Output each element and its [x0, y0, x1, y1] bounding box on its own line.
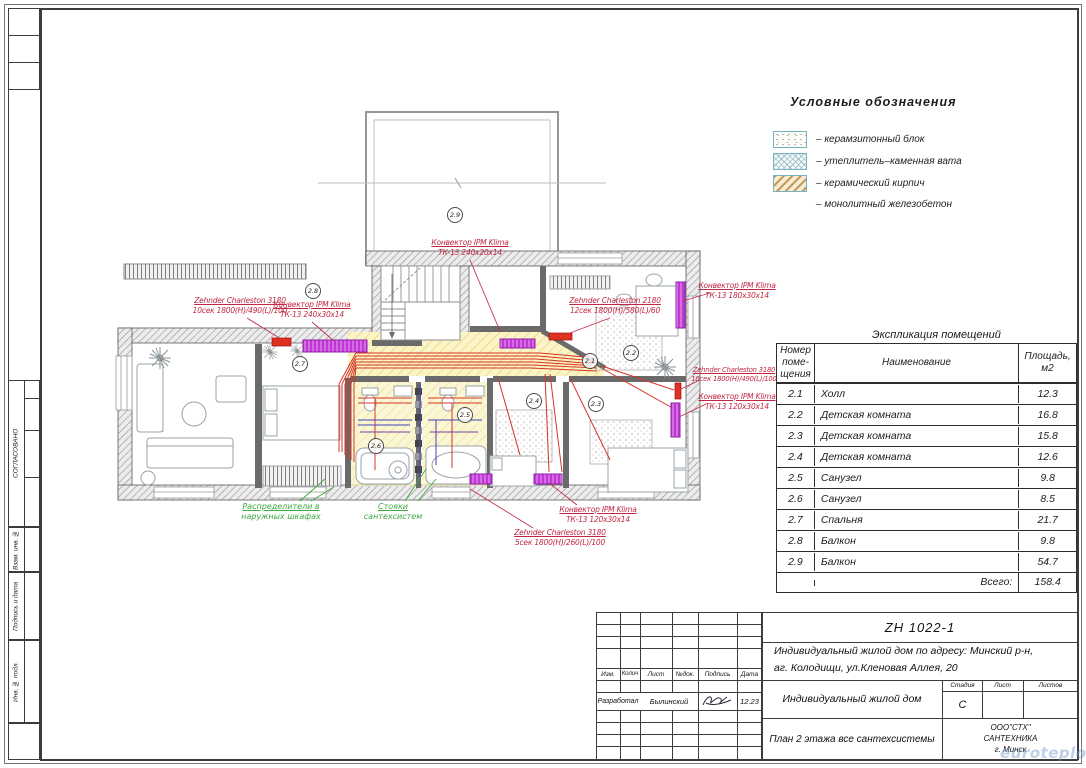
col-header-name: Наименование: [815, 344, 1019, 382]
label-zehnder-bottom: Zehnder Charleston 31805сек 1800(H)/260(…: [508, 528, 612, 548]
balcony-2-8-railing: [124, 264, 306, 279]
total-value: 158.4: [1019, 573, 1076, 591]
rooms-table-title: Экспликация помещений: [872, 329, 1001, 341]
table-row: 2.5Санузел9.8: [777, 467, 1076, 488]
legend-swatch-keramzit: [773, 131, 807, 148]
sheet-title: План 2 этажа все сантехсистемы: [762, 718, 942, 760]
table-row: 2.4Детская комната12.6: [777, 446, 1076, 467]
room-circle-2-2: 2.2: [623, 345, 639, 361]
legend-item-keramzit: – керамзитонный блок: [816, 134, 925, 145]
company-line2: САНТЕХНИКА: [943, 733, 1078, 744]
stairs: [381, 266, 460, 340]
drawing-sheet: СОГЛАСОВАНО Взам. инв. № Подпись и дата …: [0, 0, 1086, 768]
total-label: Всего:: [815, 573, 1020, 591]
table-row: 2.2Детская комната16.8: [777, 404, 1076, 425]
label-convector-right-mid: Конвектор IPM KlimaТК-13 120x30x14: [694, 392, 780, 412]
col-izm: Изм.: [596, 668, 620, 680]
developer-date: 12.23: [737, 692, 762, 710]
object-name: Индивидуальный жилой дом: [762, 680, 942, 718]
stage-label: Стадия: [943, 680, 982, 691]
watermark: euroteplo.by: [1000, 744, 1086, 762]
legend-title: Условные обозначения: [790, 95, 956, 109]
legend-item-insulation: – утеплитель–каменная вата: [816, 156, 962, 167]
label-convector-bottom: Конвектор IPM KlimaТК-13 120x30x14: [550, 505, 646, 525]
table-row: 2.8Балкон9.8: [777, 530, 1076, 551]
company-line1: ООО"СТХ": [943, 722, 1078, 733]
col-podpis: Подпись: [698, 668, 737, 680]
label-zehnder-right: Zehnder Charleston 318010сек 1800(H)/490…: [688, 366, 780, 384]
room-circle-2-6: 2.6: [368, 438, 384, 454]
lists-label: Листов: [1023, 680, 1078, 691]
legend-swatch-insulation: [773, 153, 807, 170]
legend-item-brick: – керамический кирпич: [816, 178, 925, 189]
legend-item-concrete: – монолитный железобетон: [816, 199, 952, 210]
room-circle-2-5: 2.5: [457, 407, 473, 423]
label-zehnder-mid: Zehnder Charleston 218012сек 1800(H)/580…: [556, 296, 674, 316]
legend-swatch-brick: [773, 175, 807, 192]
col-kolich: Колич: [620, 668, 640, 680]
address-line2: аг. Колодищи, ул.Кленовая Аллея, 20: [774, 662, 958, 674]
table-row: 2.9Балкон54.7: [777, 551, 1076, 572]
col-data: Дата: [737, 668, 762, 680]
table-total-row: Всего: 158.4: [777, 572, 1076, 592]
label-risers: Стоякисантехсистем: [348, 502, 438, 523]
room-circle-2-1: 2.1: [582, 353, 598, 369]
col-header-num: Номер поме- щения: [777, 344, 815, 382]
room-circle-2-3: 2.3: [588, 396, 604, 412]
table-row: 2.7Спальня21.7: [777, 509, 1076, 530]
col-header-area: Площадь, м2: [1019, 344, 1076, 382]
developer-role: Разработал: [596, 692, 640, 710]
room-circle-2-4: 2.4: [526, 393, 542, 409]
table-row: 2.6Санузел8.5: [777, 488, 1076, 509]
room-circle-2-7: 2.7: [292, 356, 308, 372]
list-label: Лист: [982, 680, 1023, 691]
rooms-table-header: Номер поме- щения Наименование Площадь, …: [777, 344, 1076, 383]
address-line1: Индивидуальный жилой дом по адресу: Минс…: [774, 645, 1033, 657]
room-circle-2-9: 2.9: [447, 207, 463, 223]
stage-value: С: [943, 691, 982, 718]
rooms-table: Номер поме- щения Наименование Площадь, …: [776, 343, 1077, 593]
label-convector-right-top: Конвектор IPM KlimaТК-13 180x30x14: [694, 281, 780, 301]
table-row: 2.3Детская комната15.8: [777, 425, 1076, 446]
col-ndok: №док.: [672, 668, 698, 680]
label-convector-left: Конвектор IPM KlimaТК-13 240x30x14: [256, 300, 368, 320]
signature: [698, 692, 737, 710]
label-convector-top: Конвектор IPM KlimaТК-13 240x20x14: [405, 238, 535, 258]
doc-code: ZH 1022-1: [762, 612, 1078, 642]
developer-name: Былинский: [640, 692, 698, 710]
table-row: 2.1Холл12.3: [777, 383, 1076, 404]
col-list: Лист: [640, 668, 672, 680]
label-distributors: Распределители внаружных шкафах: [222, 502, 340, 523]
